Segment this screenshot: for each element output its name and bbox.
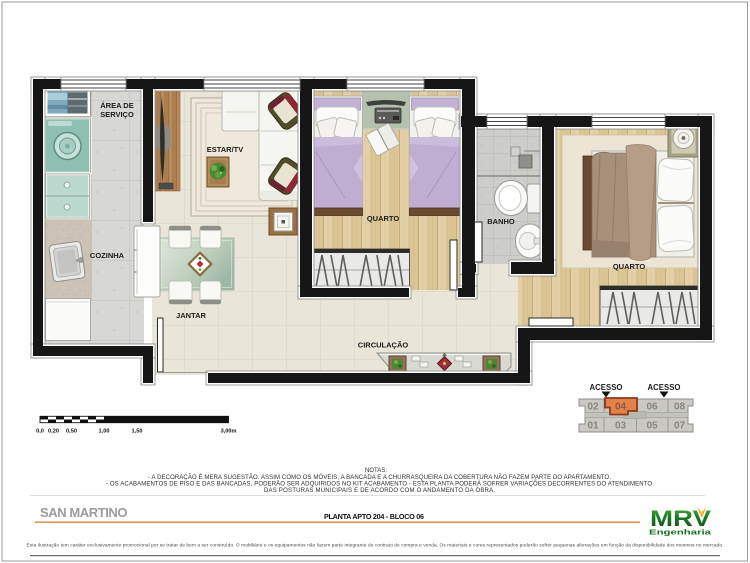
svg-text:1,00: 1,00 (99, 429, 110, 435)
svg-text:QUARTO: QUARTO (367, 214, 400, 223)
svg-text:1,50: 1,50 (132, 429, 143, 435)
svg-text:CIRCULAÇÃO: CIRCULAÇÃO (358, 341, 409, 350)
svg-text:ACESSO: ACESSO (590, 383, 623, 392)
svg-text:Engenharia: Engenharia (649, 528, 712, 537)
svg-text:08: 08 (674, 402, 686, 413)
svg-text:- OS ACABAMENTOS DE PISO E DAS: - OS ACABAMENTOS DE PISO E DAS BANCADAS,… (106, 481, 652, 488)
svg-text:03: 03 (615, 421, 627, 432)
svg-text:04: 04 (615, 402, 627, 413)
svg-text:06: 06 (646, 402, 658, 413)
svg-text:DAS POSTURAS MUNICIPAIS E DE: DAS POSTURAS MUNICIPAIS E DE ACORDO COM … (264, 488, 495, 494)
svg-text:SERVIÇO: SERVIÇO (100, 110, 134, 119)
svg-text:0,20: 0,20 (48, 429, 59, 435)
svg-text:07: 07 (674, 421, 686, 432)
svg-text:BANHO: BANHO (487, 217, 515, 226)
svg-text:02: 02 (587, 402, 599, 413)
svg-text:COZINHA: COZINHA (90, 251, 125, 260)
svg-text:NOTAS:: NOTAS: (365, 468, 387, 474)
svg-text:0,0: 0,0 (36, 429, 44, 435)
svg-text:ESTAR/TV: ESTAR/TV (207, 145, 244, 154)
svg-text:ÁREA DE: ÁREA DE (100, 101, 133, 110)
svg-text:05: 05 (646, 421, 658, 432)
svg-text:ACESSO: ACESSO (648, 383, 681, 392)
svg-text:QUARTO: QUARTO (613, 262, 646, 271)
svg-text:01: 01 (587, 421, 599, 432)
svg-text:Esta ilustração tem caráter ex: Esta ilustração tem caráter exclusivamen… (27, 543, 724, 549)
svg-text:3,00m: 3,00m (221, 429, 237, 435)
svg-text:PLANTA APTO 204 - BLOCO 06: PLANTA APTO 204 - BLOCO 06 (324, 512, 424, 521)
svg-text:SAN MARTINO: SAN MARTINO (40, 505, 129, 520)
svg-text:- A DECORAÇÃO É MERA SUGESTÃO.: - A DECORAÇÃO É MERA SUGESTÃO. ASSIM COM… (148, 474, 611, 481)
svg-text:JANTAR: JANTAR (176, 311, 206, 320)
svg-text:0,50: 0,50 (66, 429, 77, 435)
